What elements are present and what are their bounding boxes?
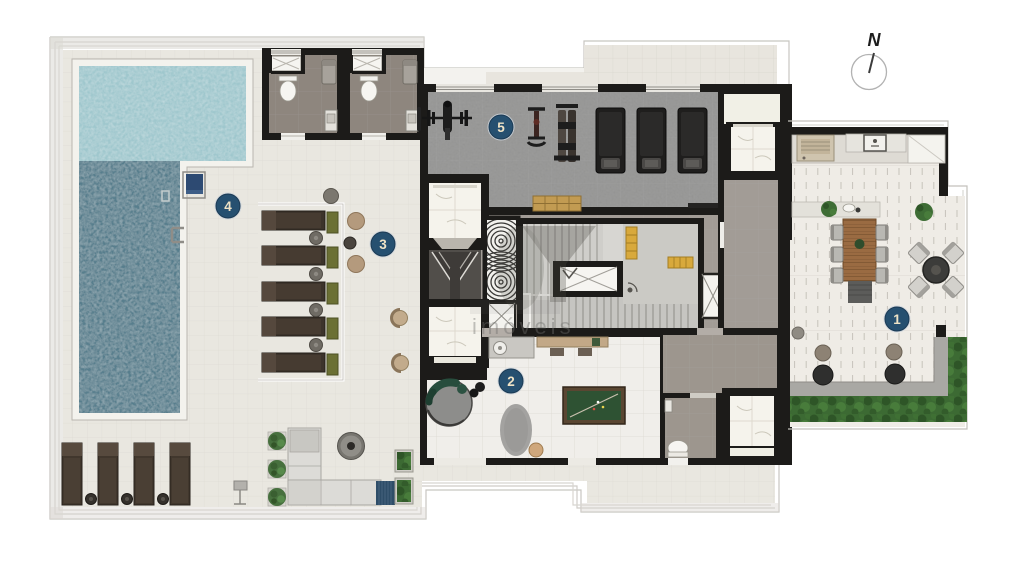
svg-text:4: 4	[224, 199, 232, 214]
svg-text:2: 2	[507, 374, 515, 389]
svg-text:3: 3	[379, 237, 387, 252]
svg-text:1: 1	[893, 312, 901, 327]
svg-text:N: N	[868, 30, 882, 50]
svg-text:5: 5	[497, 120, 505, 135]
svg-text:imóveis: imóveis	[472, 314, 575, 339]
